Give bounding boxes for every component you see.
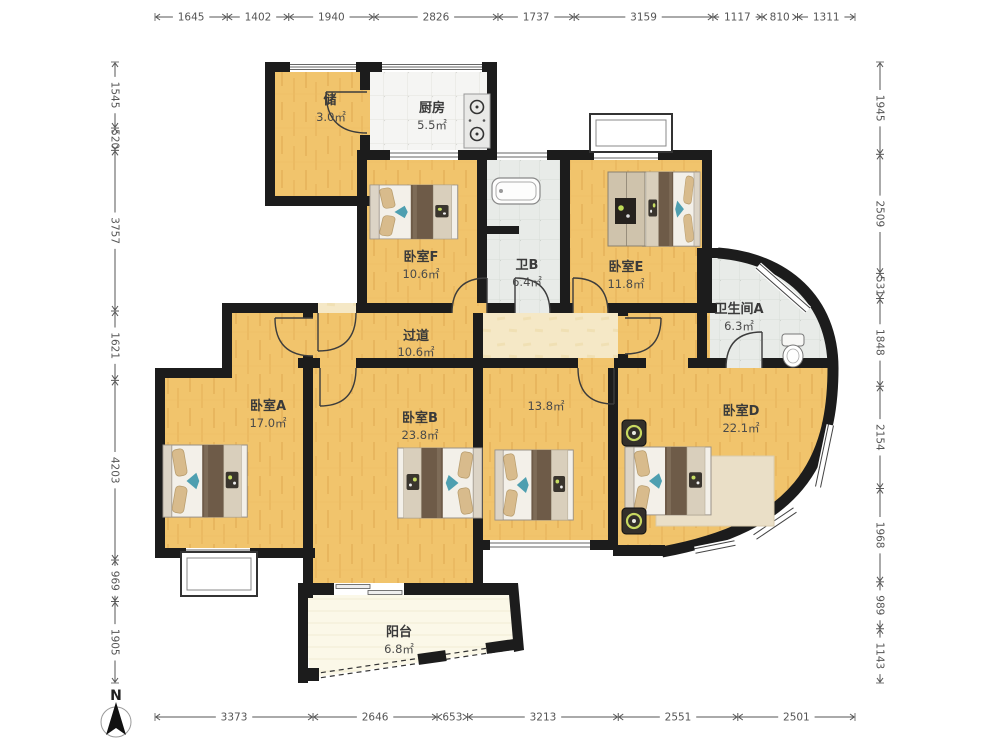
svg-text:3373: 3373 xyxy=(221,712,248,724)
label-bedroom-a: 卧室A xyxy=(250,398,286,414)
balcony-slider-door xyxy=(334,583,404,595)
label-kitchen: 厨房 xyxy=(419,100,445,116)
window-kitchen-top xyxy=(382,62,482,72)
svg-text:969: 969 xyxy=(109,571,121,591)
svg-text:17.0㎡: 17.0㎡ xyxy=(249,416,287,430)
bathtub-icon xyxy=(492,178,540,204)
svg-text:531: 531 xyxy=(874,276,886,296)
label-bedroom-b: 卧室B xyxy=(402,410,438,426)
svg-text:1143: 1143 xyxy=(874,643,886,670)
label-bath-b: 卫B xyxy=(516,258,539,273)
label-bedroom-f: 卧室F xyxy=(404,249,439,265)
svg-text:989: 989 xyxy=(874,595,886,615)
bed-bedroom-f xyxy=(370,185,458,239)
svg-text:2501: 2501 xyxy=(783,712,810,724)
svg-text:1905: 1905 xyxy=(109,629,121,656)
svg-text:3159: 3159 xyxy=(630,12,657,24)
svg-text:520: 520 xyxy=(109,129,121,149)
svg-text:2826: 2826 xyxy=(423,12,450,24)
wardrobe-bedroom-e xyxy=(608,172,645,246)
svg-text:1117: 1117 xyxy=(724,12,751,24)
svg-text:1621: 1621 xyxy=(109,332,121,359)
stove-icon xyxy=(464,94,490,148)
label-bath-a: 卫生间A xyxy=(714,301,763,317)
bay-window-bedroom-a xyxy=(181,548,257,596)
svg-text:1945: 1945 xyxy=(874,95,886,122)
svg-text:1968: 1968 xyxy=(874,522,886,549)
svg-text:810: 810 xyxy=(770,12,790,24)
svg-text:3213: 3213 xyxy=(530,712,557,724)
svg-text:10.6㎡: 10.6㎡ xyxy=(402,267,440,281)
label-hallway: 过道 xyxy=(403,328,429,344)
svg-text:1311: 1311 xyxy=(813,12,840,24)
svg-text:2646: 2646 xyxy=(362,712,389,724)
bed-bedroom-a xyxy=(163,445,247,517)
svg-text:2551: 2551 xyxy=(665,712,692,724)
svg-text:6.4㎡: 6.4㎡ xyxy=(512,275,542,289)
bed-room-138 xyxy=(495,450,573,520)
svg-text:5.5㎡: 5.5㎡ xyxy=(417,118,447,132)
window-storage-top xyxy=(290,62,356,72)
svg-text:6.8㎡: 6.8㎡ xyxy=(384,642,414,656)
dimensions-bottom: 33732646653321325512501 xyxy=(155,712,855,724)
window-bath-b-top xyxy=(497,150,547,160)
bed-bedroom-d xyxy=(625,447,711,515)
window-kitchen-pass xyxy=(390,150,458,160)
svg-text:11.8㎡: 11.8㎡ xyxy=(607,277,645,291)
compass-arrow-icon xyxy=(106,702,126,735)
svg-text:3.0㎡: 3.0㎡ xyxy=(316,110,346,124)
svg-text:1940: 1940 xyxy=(318,12,345,24)
floor-plan-page: 储 3.0㎡ 厨房 5.5㎡ 卧室F 10.6㎡ 卫B 6.4㎡ 卧室E 11.… xyxy=(0,0,1000,750)
bed-bedroom-b xyxy=(398,448,482,518)
dimensions-right: 194525095311848215419689891143 xyxy=(874,62,886,683)
svg-text:22.1㎡: 22.1㎡ xyxy=(722,421,760,435)
svg-text:1402: 1402 xyxy=(245,12,272,24)
floor-plan: 储 3.0㎡ 厨房 5.5㎡ 卧室F 10.6㎡ 卫B 6.4㎡ 卧室E 11.… xyxy=(0,0,1000,750)
svg-text:10.6㎡: 10.6㎡ xyxy=(397,345,435,359)
svg-text:653: 653 xyxy=(442,712,462,724)
dimensions-top: 16451402194028261737315911178101311 xyxy=(155,12,855,24)
label-balcony: 阳台 xyxy=(386,624,412,640)
svg-text:23.8㎡: 23.8㎡ xyxy=(401,428,439,442)
bed-bedroom-e xyxy=(642,172,700,246)
compass-north-label: N xyxy=(110,688,122,704)
dimensions-left: 15455203757162142039691905 xyxy=(109,62,121,683)
svg-text:2154: 2154 xyxy=(874,424,886,451)
svg-text:3757: 3757 xyxy=(109,217,121,244)
window-room138-bottom xyxy=(490,540,590,550)
label-room-138: 13.8㎡ xyxy=(527,399,565,413)
svg-text:1645: 1645 xyxy=(178,12,205,24)
svg-text:1545: 1545 xyxy=(109,82,121,109)
room-bedroom-a-floor xyxy=(158,308,310,555)
label-bedroom-e: 卧室E xyxy=(609,259,644,275)
label-bedroom-d: 卧室D xyxy=(723,403,760,419)
svg-text:1848: 1848 xyxy=(874,329,886,356)
label-storage: 储 xyxy=(322,92,336,108)
svg-text:6.3㎡: 6.3㎡ xyxy=(724,319,754,333)
svg-text:2509: 2509 xyxy=(874,200,886,227)
svg-text:4203: 4203 xyxy=(109,457,121,484)
compass: N xyxy=(101,688,131,737)
svg-text:1737: 1737 xyxy=(523,12,550,24)
toilet-icon xyxy=(782,334,804,367)
